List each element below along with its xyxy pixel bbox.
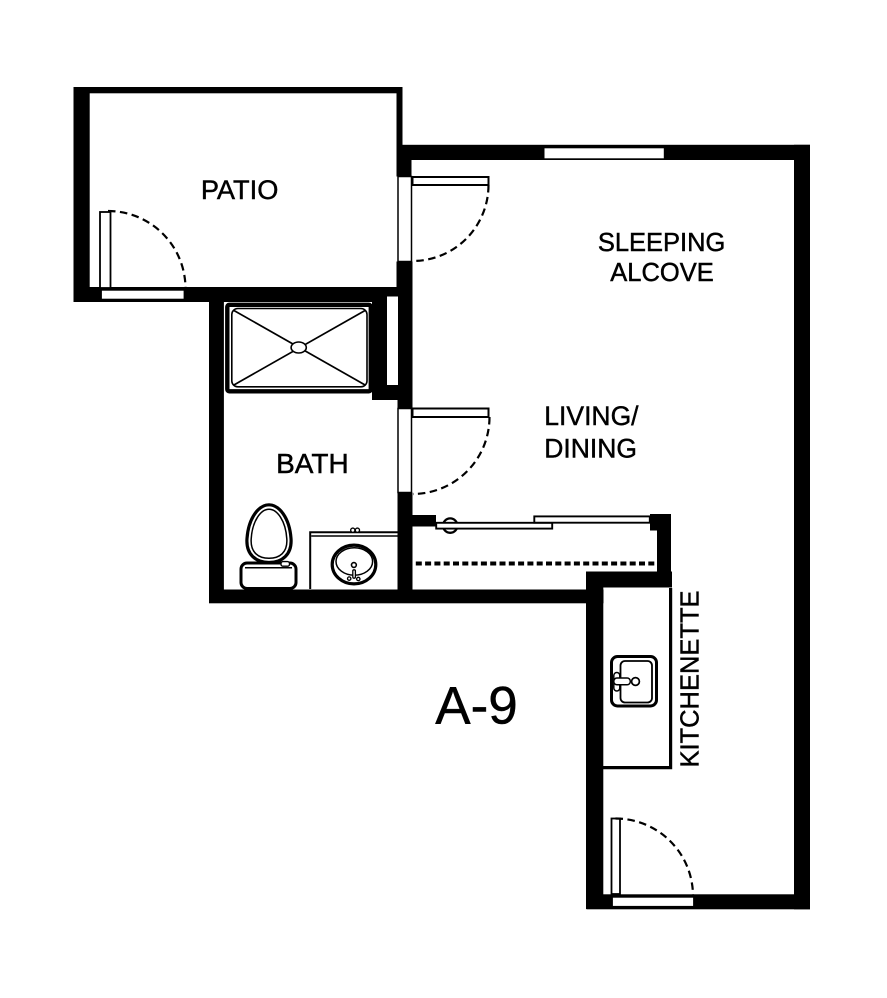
- svg-text:PATIO: PATIO: [201, 174, 279, 205]
- svg-text:BATH: BATH: [276, 448, 349, 479]
- svg-text:DINING: DINING: [544, 434, 637, 464]
- svg-text:KITCHENETTE: KITCHENETTE: [677, 590, 705, 767]
- svg-text:LIVING/: LIVING/: [544, 401, 639, 431]
- svg-text:A-9: A-9: [435, 677, 517, 736]
- svg-text:SLEEPING: SLEEPING: [598, 229, 726, 257]
- svg-text:ALCOVE: ALCOVE: [610, 259, 713, 287]
